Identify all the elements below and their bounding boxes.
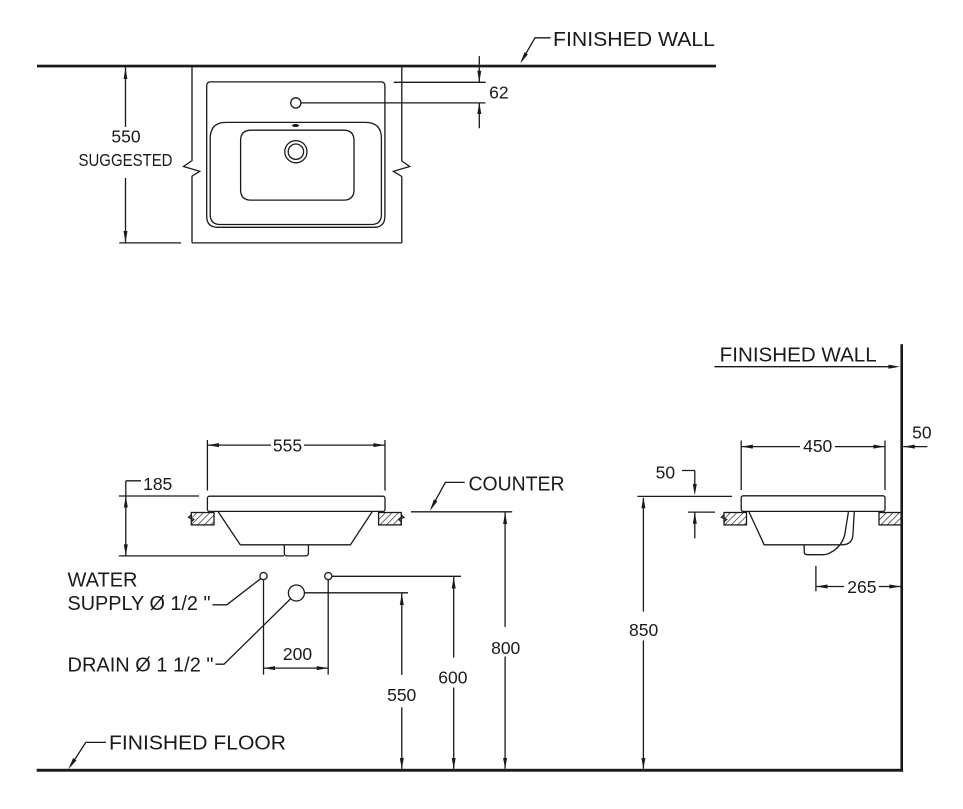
svg-text:200: 200 bbox=[283, 644, 312, 664]
svg-text:FINISHED WALL: FINISHED WALL bbox=[720, 345, 877, 367]
svg-text:WATER: WATER bbox=[68, 570, 138, 592]
svg-text:550: 550 bbox=[111, 127, 140, 147]
svg-text:SUGGESTED: SUGGESTED bbox=[79, 150, 173, 170]
svg-text:62: 62 bbox=[489, 83, 508, 103]
svg-text:850: 850 bbox=[629, 620, 658, 640]
svg-text:FINISHED FLOOR: FINISHED FLOOR bbox=[109, 733, 286, 755]
svg-text:265: 265 bbox=[847, 577, 876, 597]
svg-text:DRAIN Ø 1 1/2 ": DRAIN Ø 1 1/2 " bbox=[68, 654, 214, 676]
svg-text:50: 50 bbox=[912, 423, 932, 443]
svg-text:185: 185 bbox=[143, 474, 172, 494]
svg-text:SUPPLY Ø 1/2 ": SUPPLY Ø 1/2 " bbox=[68, 593, 211, 615]
svg-text:550: 550 bbox=[387, 685, 416, 705]
svg-text:FINISHED WALL: FINISHED WALL bbox=[553, 29, 715, 51]
svg-text:800: 800 bbox=[491, 638, 520, 658]
svg-text:50: 50 bbox=[656, 463, 676, 483]
svg-text:COUNTER: COUNTER bbox=[469, 474, 565, 496]
svg-text:450: 450 bbox=[803, 436, 832, 456]
svg-text:555: 555 bbox=[273, 436, 302, 456]
svg-text:600: 600 bbox=[438, 668, 467, 688]
